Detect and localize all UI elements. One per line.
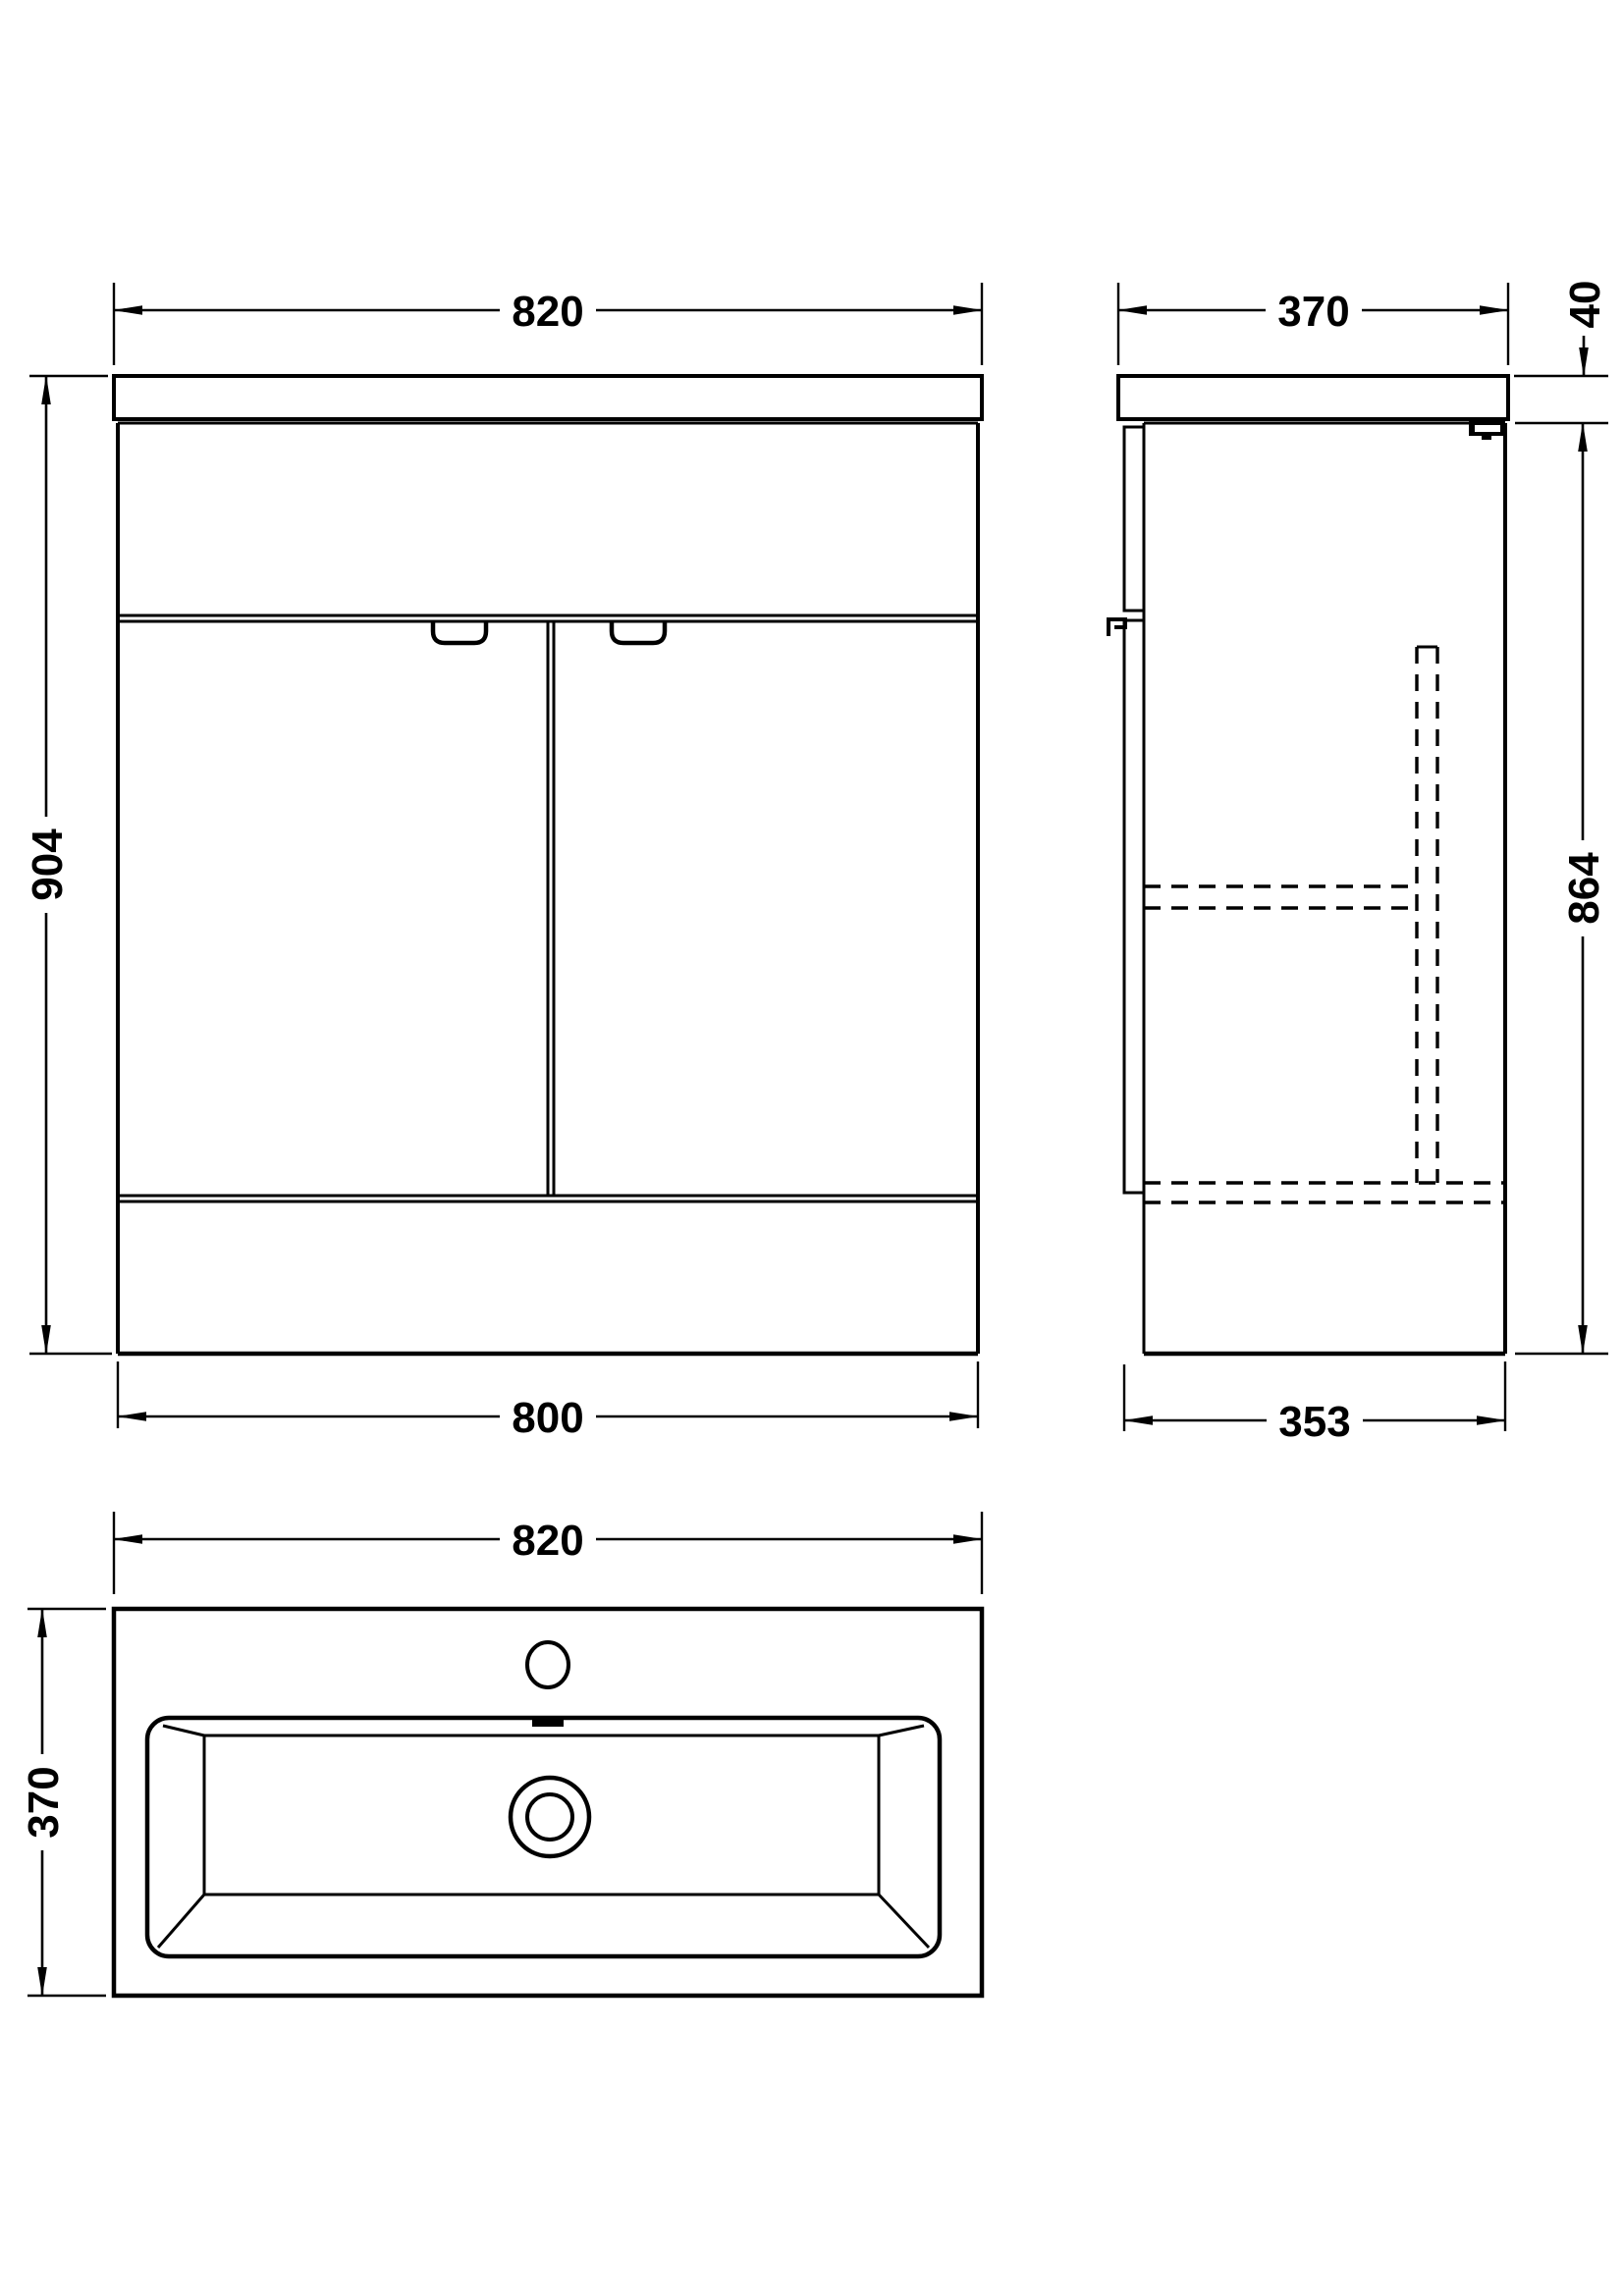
basin-bowl — [147, 1642, 940, 1956]
right-door-handle-recess — [612, 621, 665, 643]
side-door-profile — [1124, 620, 1144, 1193]
overflow-slot — [532, 1717, 564, 1727]
bowl-bevel-top-left — [163, 1726, 204, 1735]
front-dim-width-bottom: 800 — [118, 1362, 978, 1442]
front-width-bottom-label: 800 — [512, 1394, 583, 1442]
side-dim-depth-top: 370 — [1118, 283, 1508, 365]
side-section-view: 370 — [1109, 273, 1609, 1446]
side-body-height-label: 864 — [1560, 852, 1608, 925]
plan-width-label: 820 — [512, 1517, 583, 1565]
front-dim-width-top: 820 — [114, 283, 982, 365]
plan-dim-width: 820 — [114, 1512, 982, 1594]
dimension-drawing-page: { "drawing": { "background": "#ffffff", … — [0, 0, 1623, 2296]
tap-hole — [527, 1642, 568, 1687]
bowl-bevel-bottom-left — [158, 1895, 204, 1948]
side-upper-panel-profile — [1124, 427, 1144, 611]
side-worktop-thickness-label: 40 — [1561, 281, 1609, 329]
front-height-label: 904 — [24, 828, 72, 901]
side-worktop — [1118, 376, 1508, 419]
left-door-handle-recess — [433, 621, 486, 643]
side-dim-worktop-thickness: 40 — [1514, 273, 1609, 423]
front-width-top-label: 820 — [512, 288, 583, 336]
side-cabinet-body — [1109, 423, 1505, 1354]
plan-depth-label: 370 — [20, 1766, 68, 1838]
front-elevation-view: 820 904 — [24, 283, 982, 1442]
bracket-tab — [1482, 436, 1491, 440]
waste-inner-ring — [527, 1794, 572, 1840]
side-depth-bottom-label: 353 — [1278, 1398, 1350, 1446]
bracket-slot — [1475, 425, 1500, 432]
plan-dim-depth: 370 — [20, 1609, 106, 1996]
front-cabinet — [118, 423, 978, 1354]
side-door-handle-profile — [1109, 619, 1125, 636]
waste-outer-ring — [511, 1778, 589, 1856]
side-hidden-lines — [1144, 647, 1505, 1202]
bowl-floor — [204, 1735, 879, 1895]
bowl-bevel-top-right — [879, 1726, 924, 1735]
vanity-unit-technical-drawing: 820 904 — [0, 0, 1623, 2296]
side-depth-top-label: 370 — [1277, 288, 1349, 336]
side-dim-depth-bottom: 353 — [1124, 1362, 1505, 1446]
basin-outer-rim — [114, 1609, 982, 1996]
side-dim-body-height: 864 — [1515, 423, 1608, 1354]
basin-plan-view: 820 370 — [20, 1512, 982, 1996]
front-worktop — [114, 376, 982, 419]
bowl-bevel-bottom-right — [879, 1895, 929, 1948]
front-dim-height: 904 — [24, 376, 112, 1354]
